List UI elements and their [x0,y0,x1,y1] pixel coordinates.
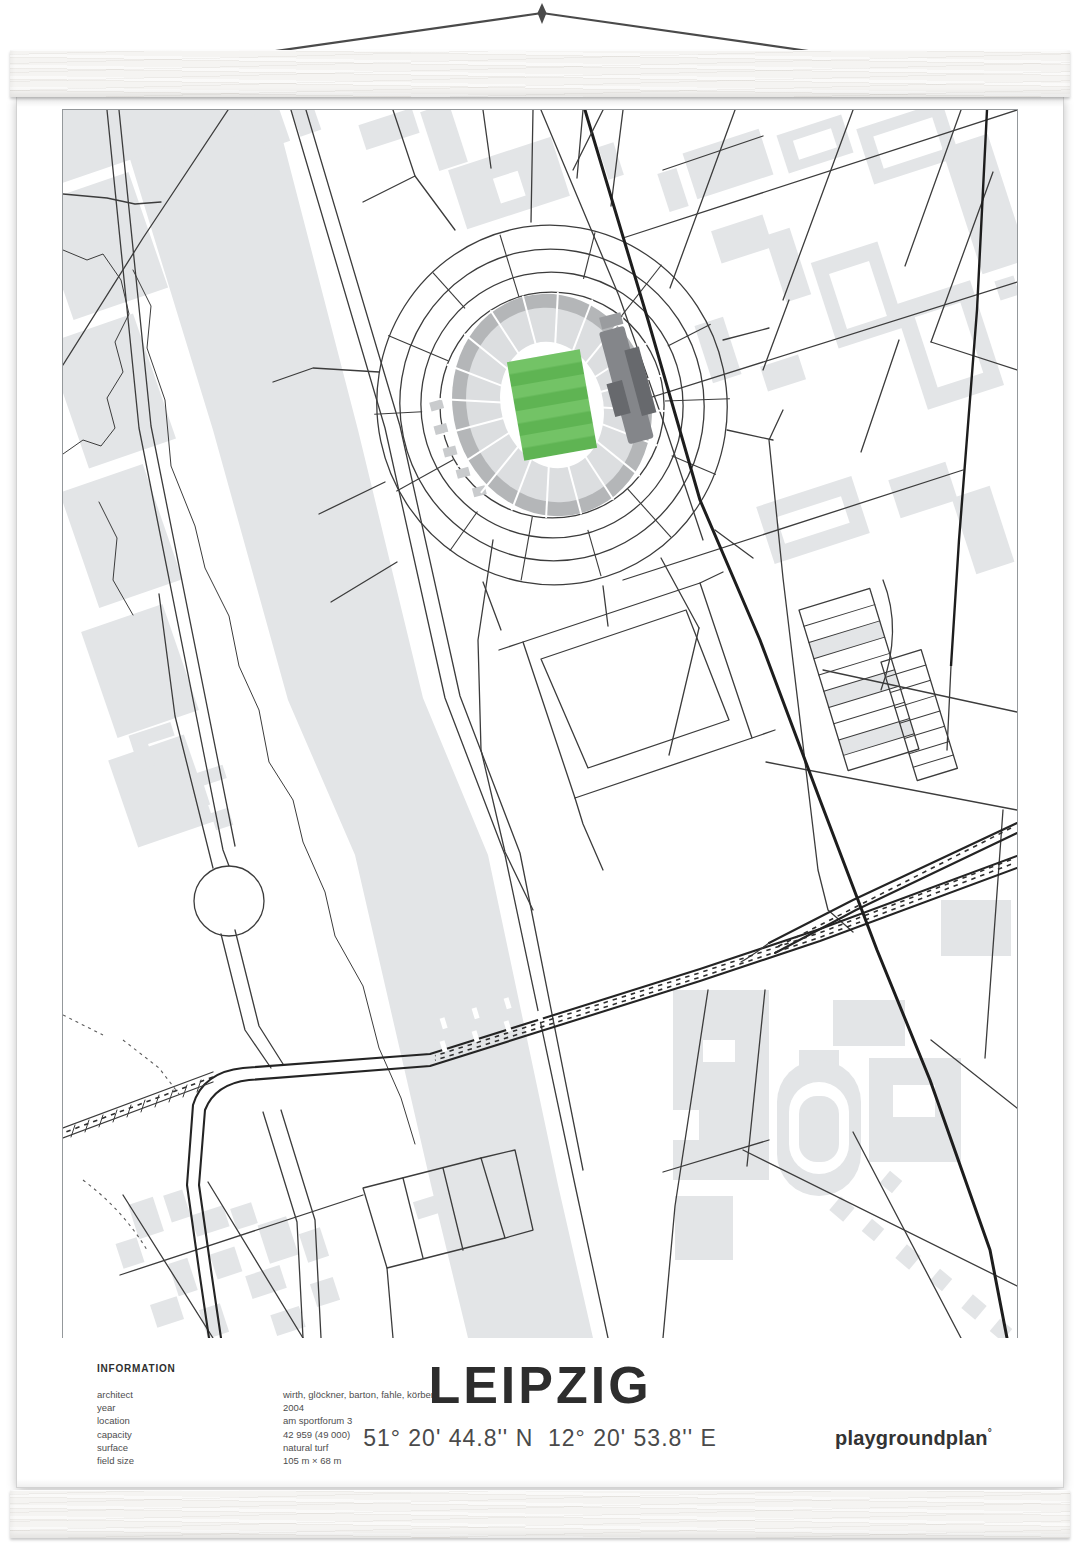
poster-title: LEIPZIG [17,1355,1063,1415]
railway-hatching [71,1080,201,1137]
info-label: field size [97,1454,283,1467]
degree-mark: ° [988,1427,992,1438]
map-channel [115,110,593,1338]
athletics-track [777,1050,861,1196]
parking-ladder-2 [881,650,957,781]
poster-scene: INFORMATION architect wirth, glöckner, b… [0,0,1080,1547]
stadium-graphic [407,267,691,546]
parking-ladder [799,588,919,770]
map-frame [62,109,1018,1338]
wooden-hanger-top [10,50,1070,97]
stadium-map [63,110,1017,1338]
paper-shadow [17,1479,1063,1487]
brand-text: playgroundplan [835,1427,988,1449]
paper-shadow [17,97,1063,107]
cord-knob [538,3,547,24]
roundabout [194,866,264,936]
info-value: 105 m × 68 m [283,1454,341,1467]
info-row: field size 105 m × 68 m [97,1454,434,1467]
brand-logo: playgroundplan° [835,1427,992,1450]
wooden-hanger-bottom [10,1490,1070,1538]
poster: INFORMATION architect wirth, glöckner, b… [17,97,1063,1487]
